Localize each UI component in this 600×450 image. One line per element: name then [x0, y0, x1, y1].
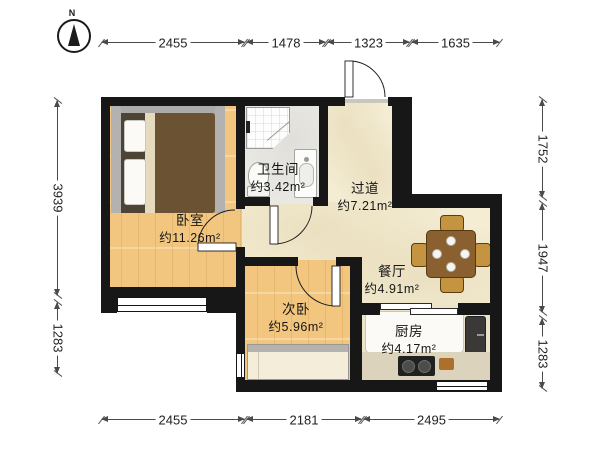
dim-right-2: 1947: [536, 203, 549, 313]
room-name: 卧室: [130, 212, 250, 230]
second-bedroom-door-arc: [296, 266, 336, 306]
dim-left-1: 3939: [51, 100, 64, 296]
dim-value: 2455: [156, 413, 191, 426]
room-name: 次卧: [255, 301, 337, 319]
room-name: 过道: [325, 180, 405, 198]
room-area: 约7.21m²: [325, 198, 405, 214]
dim-right-3: 1283: [536, 318, 549, 389]
dim-value: 2181: [287, 413, 322, 426]
dim-top-1: 2455: [101, 36, 245, 49]
second-bedroom-label: 次卧 约5.96m²: [255, 301, 337, 335]
dim-value: 1283: [536, 336, 549, 371]
hallway-label: 过道 约7.21m²: [325, 180, 405, 214]
dim-value: 2495: [414, 413, 449, 426]
room-name: 餐厅: [352, 263, 432, 281]
bathroom-label: 卫生间 约3.42m²: [237, 161, 319, 195]
dim-value: 1947: [536, 241, 549, 276]
entrance-door-arc: [349, 61, 385, 97]
kitchen-label: 厨房 约4.17m²: [366, 323, 452, 357]
second-bedroom-door-leaf: [332, 266, 340, 306]
dim-top-3: 1323: [327, 36, 410, 49]
entrance-door-leaf: [345, 61, 353, 97]
bathroom-door-leaf: [270, 206, 278, 244]
bedroom-label: 卧室 约11.26m²: [130, 212, 250, 246]
dim-value: 3939: [51, 181, 64, 216]
dim-bottom-2: 2181: [246, 413, 362, 426]
dim-bottom-1: 2455: [101, 413, 245, 426]
dim-value: 1283: [51, 321, 64, 356]
floorplan: N: [0, 0, 600, 450]
dim-left-2: 1283: [51, 302, 64, 374]
dim-value: 1752: [536, 131, 549, 166]
dining-label: 餐厅 约4.91m²: [352, 263, 432, 297]
room-area: 约11.26m²: [130, 230, 250, 246]
dim-value: 1478: [269, 36, 304, 49]
dim-value: 1323: [351, 36, 386, 49]
room-name: 厨房: [366, 323, 452, 341]
room-area: 约4.91m²: [352, 281, 432, 297]
room-area: 约4.17m²: [366, 341, 452, 357]
dim-value: 1635: [438, 36, 473, 49]
room-area: 约5.96m²: [255, 319, 337, 335]
dim-value: 2455: [156, 36, 191, 49]
dim-bottom-3: 2495: [363, 413, 500, 426]
dim-top-2: 1478: [246, 36, 326, 49]
bathroom-door-arc: [274, 206, 312, 244]
dim-right-1: 1752: [536, 99, 549, 198]
room-area: 约3.42m²: [237, 179, 319, 195]
dim-top-4: 1635: [411, 36, 500, 49]
door-swings: [0, 0, 600, 450]
room-name: 卫生间: [237, 161, 319, 179]
